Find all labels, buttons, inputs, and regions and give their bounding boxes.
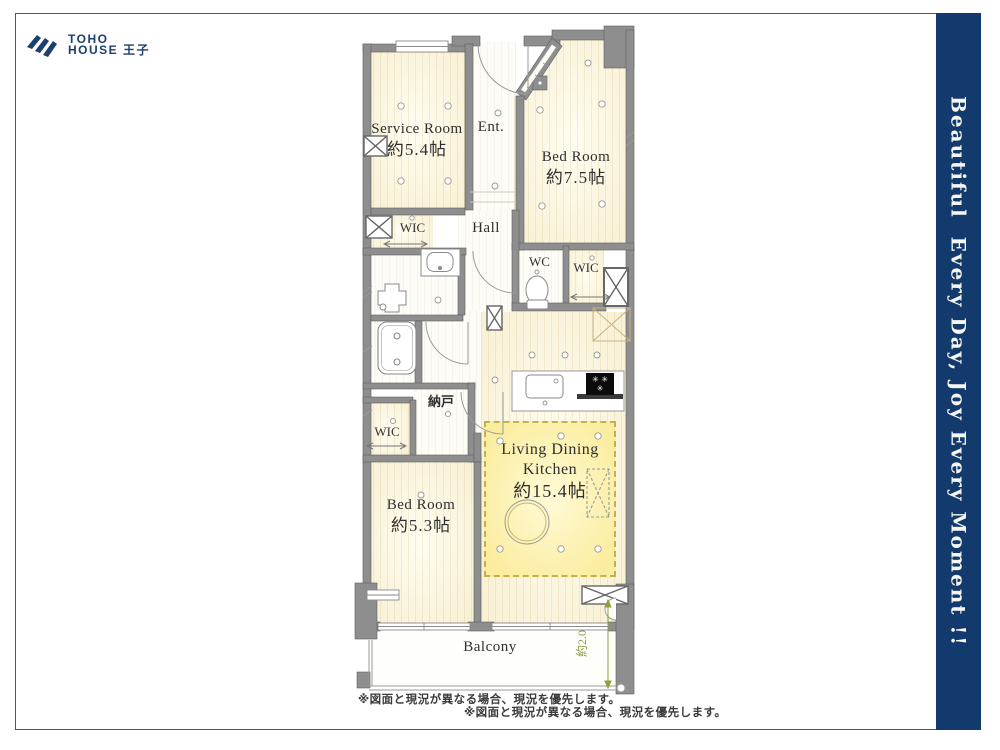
label-bedroom1: Bed Room 約7.5帖 — [520, 148, 632, 188]
slogan-text: Beautiful Every Day, Joy Every Moment !! — [947, 96, 971, 647]
label-entrance: Ent. — [466, 118, 516, 137]
label-wic-lower: WIC — [364, 424, 410, 440]
room-bathroom — [368, 320, 460, 384]
label-wic-upper: WIC — [390, 220, 435, 236]
logo-text: TOHO HOUSE 王子 — [68, 34, 150, 56]
toho-logo-icon — [26, 30, 60, 60]
label-wic-right: WIC — [566, 260, 606, 276]
slogan-banner: Beautiful Every Day, Joy Every Moment !! — [936, 13, 981, 730]
balcony-depth-dimension: 約2.0 — [573, 643, 613, 657]
logo-line2: HOUSE 王子 — [68, 45, 150, 56]
label-ldk: Living Dining Kitchen 約15.4帖 — [484, 440, 616, 503]
room-wic-right — [568, 248, 604, 306]
logo: TOHO HOUSE 王子 — [26, 30, 150, 60]
label-storage: 納戸 — [416, 394, 466, 410]
label-balcony: Balcony — [400, 638, 580, 657]
label-wc: WC — [516, 254, 563, 270]
label-hall: Hall — [458, 219, 514, 238]
refrigerator-icon: ✳ ✳ ✳ — [586, 373, 614, 395]
label-bedroom2: Bed Room 約5.3帖 — [366, 496, 476, 536]
page: TOHO HOUSE 王子 Beautiful Every Day, Joy E… — [0, 0, 1000, 750]
disclaimer-line2: ※図面と現況が異なる場合、現況を優先します。 — [464, 704, 727, 720]
label-service-room: Service Room 約5.4帖 — [368, 120, 466, 160]
room-washroom — [368, 254, 460, 316]
room-bedroom2 — [366, 460, 474, 624]
